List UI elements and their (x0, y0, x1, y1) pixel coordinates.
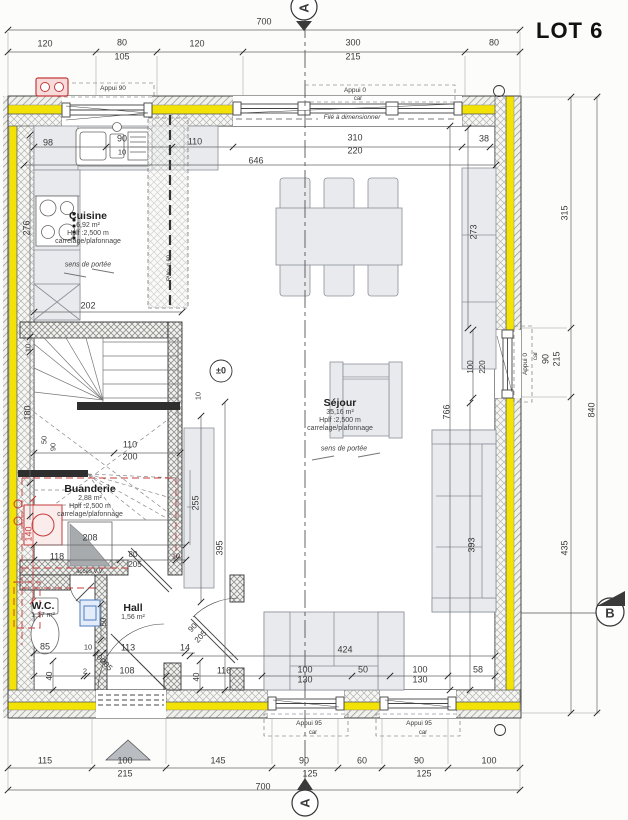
dim-label: 10 (194, 392, 202, 400)
dim-label: 840 (588, 402, 597, 417)
window-sill-note: Appui 0 (523, 353, 530, 375)
dim-label: 310 (347, 134, 362, 143)
room-label-buanderie: Buanderie2,88 m²Hplf :2,500 mcarrelage/p… (57, 483, 123, 519)
dim-label: 100 (297, 666, 312, 675)
section-letter-right: B (605, 607, 614, 620)
dim-label: 273 (470, 224, 479, 239)
dim-label: car (533, 352, 539, 360)
dim-label: 90 (299, 757, 309, 766)
dim-label: 14 (180, 644, 190, 653)
dim-label: 85 (40, 643, 50, 652)
dim-label: 110 (188, 138, 202, 147)
vent-symbol-bottom (495, 725, 506, 736)
dim-label: 80 (129, 551, 138, 559)
dim-label: 115 (38, 757, 52, 766)
room-name: Cuisine (55, 210, 121, 222)
plan-title: LOT 6 (536, 18, 603, 44)
window-sill-note: Appui 0 (344, 88, 366, 95)
span-direction-note: sens de portée (65, 262, 111, 269)
dim-label: 38 (479, 135, 489, 144)
dim-label: 40 (193, 673, 201, 682)
dim-label: 435 (561, 540, 570, 555)
dim-label: car (419, 730, 427, 736)
room-info: 1,56 m² (121, 614, 145, 622)
dim-label: 58 (473, 666, 483, 675)
dim-label: 766 (443, 404, 452, 419)
dim-label: car (354, 96, 362, 102)
dim-label: 110 (123, 441, 137, 450)
room-label-wc: W.C.1,17 m² (31, 600, 55, 620)
dim-label: 130 (412, 676, 427, 685)
dim-label: 200 (122, 453, 137, 462)
dim-label: 100 (412, 666, 427, 675)
dim-label: 100 (467, 360, 475, 373)
room-info: Hplf :2,500 m (57, 503, 123, 511)
dim-label: 300 (345, 39, 360, 48)
dim-label: 113 (121, 644, 135, 653)
dim-label: 50 (40, 436, 48, 444)
dim-label: 60 (357, 757, 367, 766)
room-info: 1,17 m² (31, 612, 55, 620)
sofa-bottom (264, 612, 404, 690)
sideboard-right (462, 168, 496, 369)
dim-label: 116 (217, 667, 231, 676)
window-sill-note: Appui 95 (406, 721, 432, 728)
dim-label: 80 (489, 39, 499, 48)
dim-label: 700 (255, 783, 270, 792)
room-info: 35,16 m² (307, 409, 373, 417)
dim-label: 118 (50, 553, 64, 562)
dim-label: 646 (248, 157, 263, 166)
dim-label: 10 (172, 552, 180, 560)
room-name: Buanderie (57, 483, 123, 495)
dim-label: 90 (542, 354, 551, 364)
sink (76, 123, 152, 167)
dim-label: 108 (119, 667, 134, 676)
dim-label: 98 (43, 139, 53, 148)
dim-label: 215 (117, 770, 132, 779)
span-direction-note: sens de portée (321, 446, 367, 453)
dim-label: 276 (23, 220, 32, 235)
room-info: Hplf :2,500 m (55, 230, 121, 238)
room-label-cuisine: Cuisine6,92 m²Hplf :2,500 mcarrelage/pla… (55, 210, 121, 246)
dim-label: 40 (46, 672, 54, 681)
dim-label: 700 (256, 18, 271, 27)
dim-label: 255 (192, 495, 201, 510)
beam-note: Filé à dimensionner (324, 115, 381, 122)
section-letter-top: A (298, 3, 311, 12)
room-info: Hplf :2,500 m (307, 417, 373, 425)
room-info: carrelage/plafonnage (55, 238, 121, 246)
room-label-sejour: Séjour35,16 m²Hplf :2,500 mcarrelage/pla… (307, 397, 373, 433)
dim-label: 90 (117, 135, 127, 144)
dim-label: 130 (297, 676, 312, 685)
dim-label: 100 (117, 757, 132, 766)
room-info: carrelage/plafonnage (57, 511, 123, 519)
dim-label: 50 (358, 666, 368, 675)
room-info: carrelage/plafonnage (307, 425, 373, 433)
room-info: 2,88 m² (57, 495, 123, 503)
dim-label: 10 (118, 148, 126, 156)
dim-label: 215 (345, 53, 360, 62)
dim-label: 208 (82, 534, 97, 543)
dim-label: 393 (468, 537, 477, 552)
room-name: Hall (121, 602, 145, 614)
dining-table (276, 208, 402, 265)
dim-label: 315 (561, 205, 570, 220)
vent-symbol-top (494, 86, 505, 97)
dim-label: 125 (302, 770, 317, 779)
dim-label: 105 (114, 53, 129, 62)
room-name: Séjour (307, 397, 373, 409)
dim-label: 50 (100, 618, 108, 627)
dim-label: 424 (337, 646, 352, 655)
room-name: W.C. (31, 600, 55, 612)
floor-plan: 7001208010512030021580989010110310220386… (0, 0, 628, 820)
dim-label: 125 (416, 770, 431, 779)
dim-label: 395 (216, 540, 225, 555)
section-letter-bottom: A (299, 798, 312, 807)
dim-label: 80 (117, 39, 127, 48)
dim-label: car (309, 730, 317, 736)
dim-label: 90 (414, 757, 424, 766)
electrical-panel (80, 600, 100, 626)
dim-label: 2 (83, 667, 87, 675)
level-marker: ±0 (216, 367, 226, 376)
dim-label: 215 (553, 351, 562, 366)
downpipe-note: RWa d.60 (167, 255, 173, 281)
dim-label: 140 (25, 526, 34, 541)
dim-label: 10 (24, 344, 32, 352)
dim-label: 220 (479, 360, 487, 373)
dim-label: 205 (128, 561, 141, 569)
room-label-hall: Hall1,56 m² (121, 602, 145, 622)
window-sill-note: Appui 90 (100, 86, 126, 93)
dim-label: 120 (37, 40, 52, 49)
dim-label: 10 (84, 643, 92, 651)
window-sill-note: Appui 95 (296, 721, 322, 728)
sofa-right (432, 430, 496, 612)
dim-label: 220 (347, 147, 362, 156)
dim-label: 120 (189, 40, 204, 49)
dim-label: 145 (210, 757, 225, 766)
dim-label: 202 (80, 302, 95, 311)
dim-label: 180 (24, 405, 33, 420)
dim-label: accès V.V. (76, 569, 104, 575)
room-info: 6,92 m² (55, 222, 121, 230)
dim-label: 90 (49, 443, 57, 451)
dim-label: 100 (481, 757, 496, 766)
